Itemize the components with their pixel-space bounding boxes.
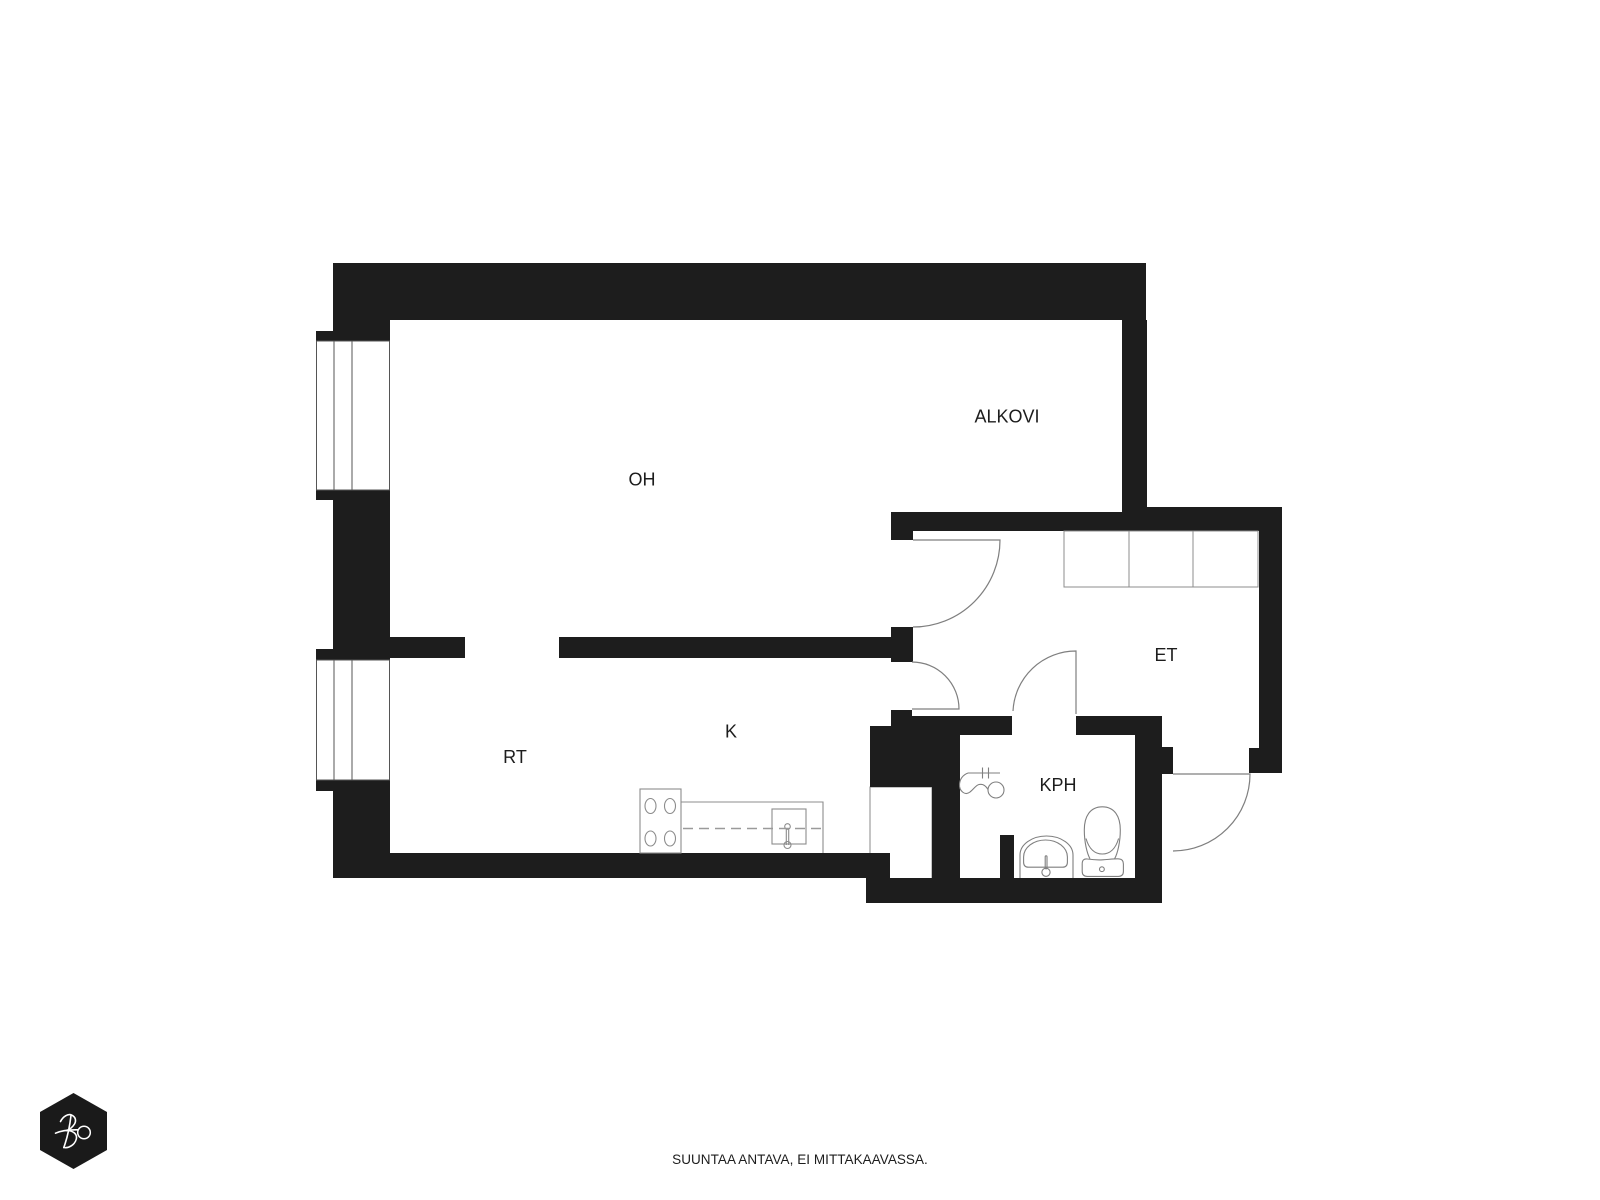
- svg-text:SUUNTAA ANTAVA, EI MITTAKAAVAS: SUUNTAA ANTAVA, EI MITTAKAAVASSA.: [672, 1152, 928, 1167]
- svg-text:ET: ET: [1154, 645, 1177, 665]
- svg-text:OH: OH: [629, 470, 656, 490]
- svg-text:K: K: [725, 722, 737, 742]
- svg-text:ALKOVI: ALKOVI: [974, 407, 1039, 427]
- svg-text:KPH: KPH: [1039, 775, 1076, 795]
- svg-text:RT: RT: [503, 747, 527, 767]
